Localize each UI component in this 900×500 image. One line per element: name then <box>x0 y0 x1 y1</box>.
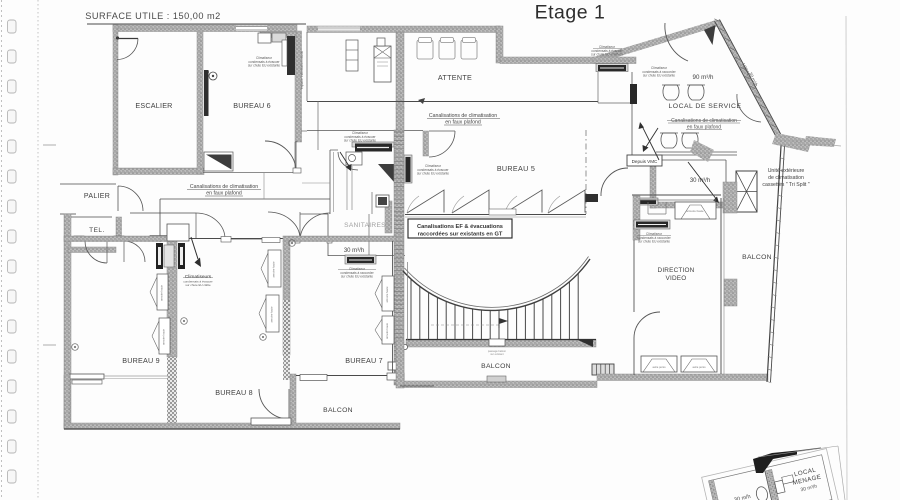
svg-text:VIDEO: VIDEO <box>666 275 687 282</box>
svg-text:BUREAU 7: BUREAU 7 <box>345 356 383 365</box>
svg-text:sur chute EU existante: sur chute EU existante <box>417 172 449 176</box>
svg-text:sur existant: sur existant <box>490 352 504 356</box>
svg-text:SANITAIRES: SANITAIRES <box>344 222 386 229</box>
svg-text:DIRECTION: DIRECTION <box>658 267 695 274</box>
svg-text:de climatisation: de climatisation <box>768 175 804 181</box>
svg-text:Unité extérieure: Unité extérieure <box>768 168 805 174</box>
svg-text:sur chute EU existante: sur chute EU existante <box>638 240 670 244</box>
svg-text:armoire haute: armoire haute <box>385 286 389 303</box>
svg-text:sur chute EU câble: sur chute EU câble <box>185 283 211 287</box>
svg-text:Depuis VMC: Depuis VMC <box>632 159 658 164</box>
svg-text:Etage 1: Etage 1 <box>535 2 606 24</box>
svg-text:BUREAU 5: BUREAU 5 <box>497 164 535 173</box>
svg-text:armoire haute: armoire haute <box>686 209 704 213</box>
svg-text:BUREAU 8: BUREAU 8 <box>215 388 253 397</box>
svg-text:armoire haute: armoire haute <box>162 328 166 345</box>
svg-text:SURFACE UTILE : 150,00 m2: SURFACE UTILE : 150,00 m2 <box>85 11 221 21</box>
svg-text:armoire haute: armoire haute <box>385 322 389 339</box>
svg-text:BUREAU 6: BUREAU 6 <box>233 101 271 110</box>
svg-text:BALCON: BALCON <box>742 254 772 261</box>
svg-text:Canalisations de climatisation: Canalisations de climatisation <box>190 184 258 190</box>
svg-text:ESCALIER: ESCALIER <box>135 101 172 110</box>
svg-text:sur chute EU existante: sur chute EU existante <box>643 74 675 78</box>
svg-text:BALCON: BALCON <box>323 407 353 414</box>
svg-text:armoire haute: armoire haute <box>270 306 274 323</box>
svg-text:LOCAL DE SERVICE: LOCAL DE SERVICE <box>669 103 742 110</box>
svg-text:BUREAU 9: BUREAU 9 <box>122 356 160 365</box>
svg-text:30 m³/h: 30 m³/h <box>690 178 710 184</box>
svg-text:armoire haute: armoire haute <box>272 261 276 278</box>
svg-text:TEL.: TEL. <box>89 227 105 234</box>
svg-text:armoire haute: armoire haute <box>160 284 164 301</box>
svg-text:en faux plafond: en faux plafond <box>445 120 481 126</box>
svg-text:Canalisations EF & évacuations: Canalisations EF & évacuations <box>417 224 503 230</box>
svg-text:sur chute EU existante: sur chute EU existante <box>341 275 373 279</box>
svg-text:30 m³/h: 30 m³/h <box>344 248 364 254</box>
svg-text:espace information mural: espace information mural <box>300 51 304 89</box>
svg-text:PALIER: PALIER <box>84 193 110 200</box>
svg-text:90 m³/h: 90 m³/h <box>693 74 715 81</box>
svg-text:cassettes " Tri Split ": cassettes " Tri Split " <box>762 182 809 188</box>
svg-text:en faux plafond: en faux plafond <box>206 191 242 197</box>
svg-text:autre perso: autre perso <box>652 365 666 369</box>
svg-text:sur chute EU extérieur: sur chute EU extérieur <box>591 53 624 57</box>
svg-text:Canalisations de climatisation: Canalisations de climatisation <box>429 113 497 119</box>
svg-text:autre perso: autre perso <box>692 365 706 369</box>
svg-text:ATTENTE: ATTENTE <box>438 73 472 82</box>
svg-text:BALCON: BALCON <box>481 363 511 370</box>
svg-text:raccordées sur existants en GT: raccordées sur existants en GT <box>418 232 503 238</box>
svg-text:sur chute EU existante: sur chute EU existante <box>248 64 280 68</box>
